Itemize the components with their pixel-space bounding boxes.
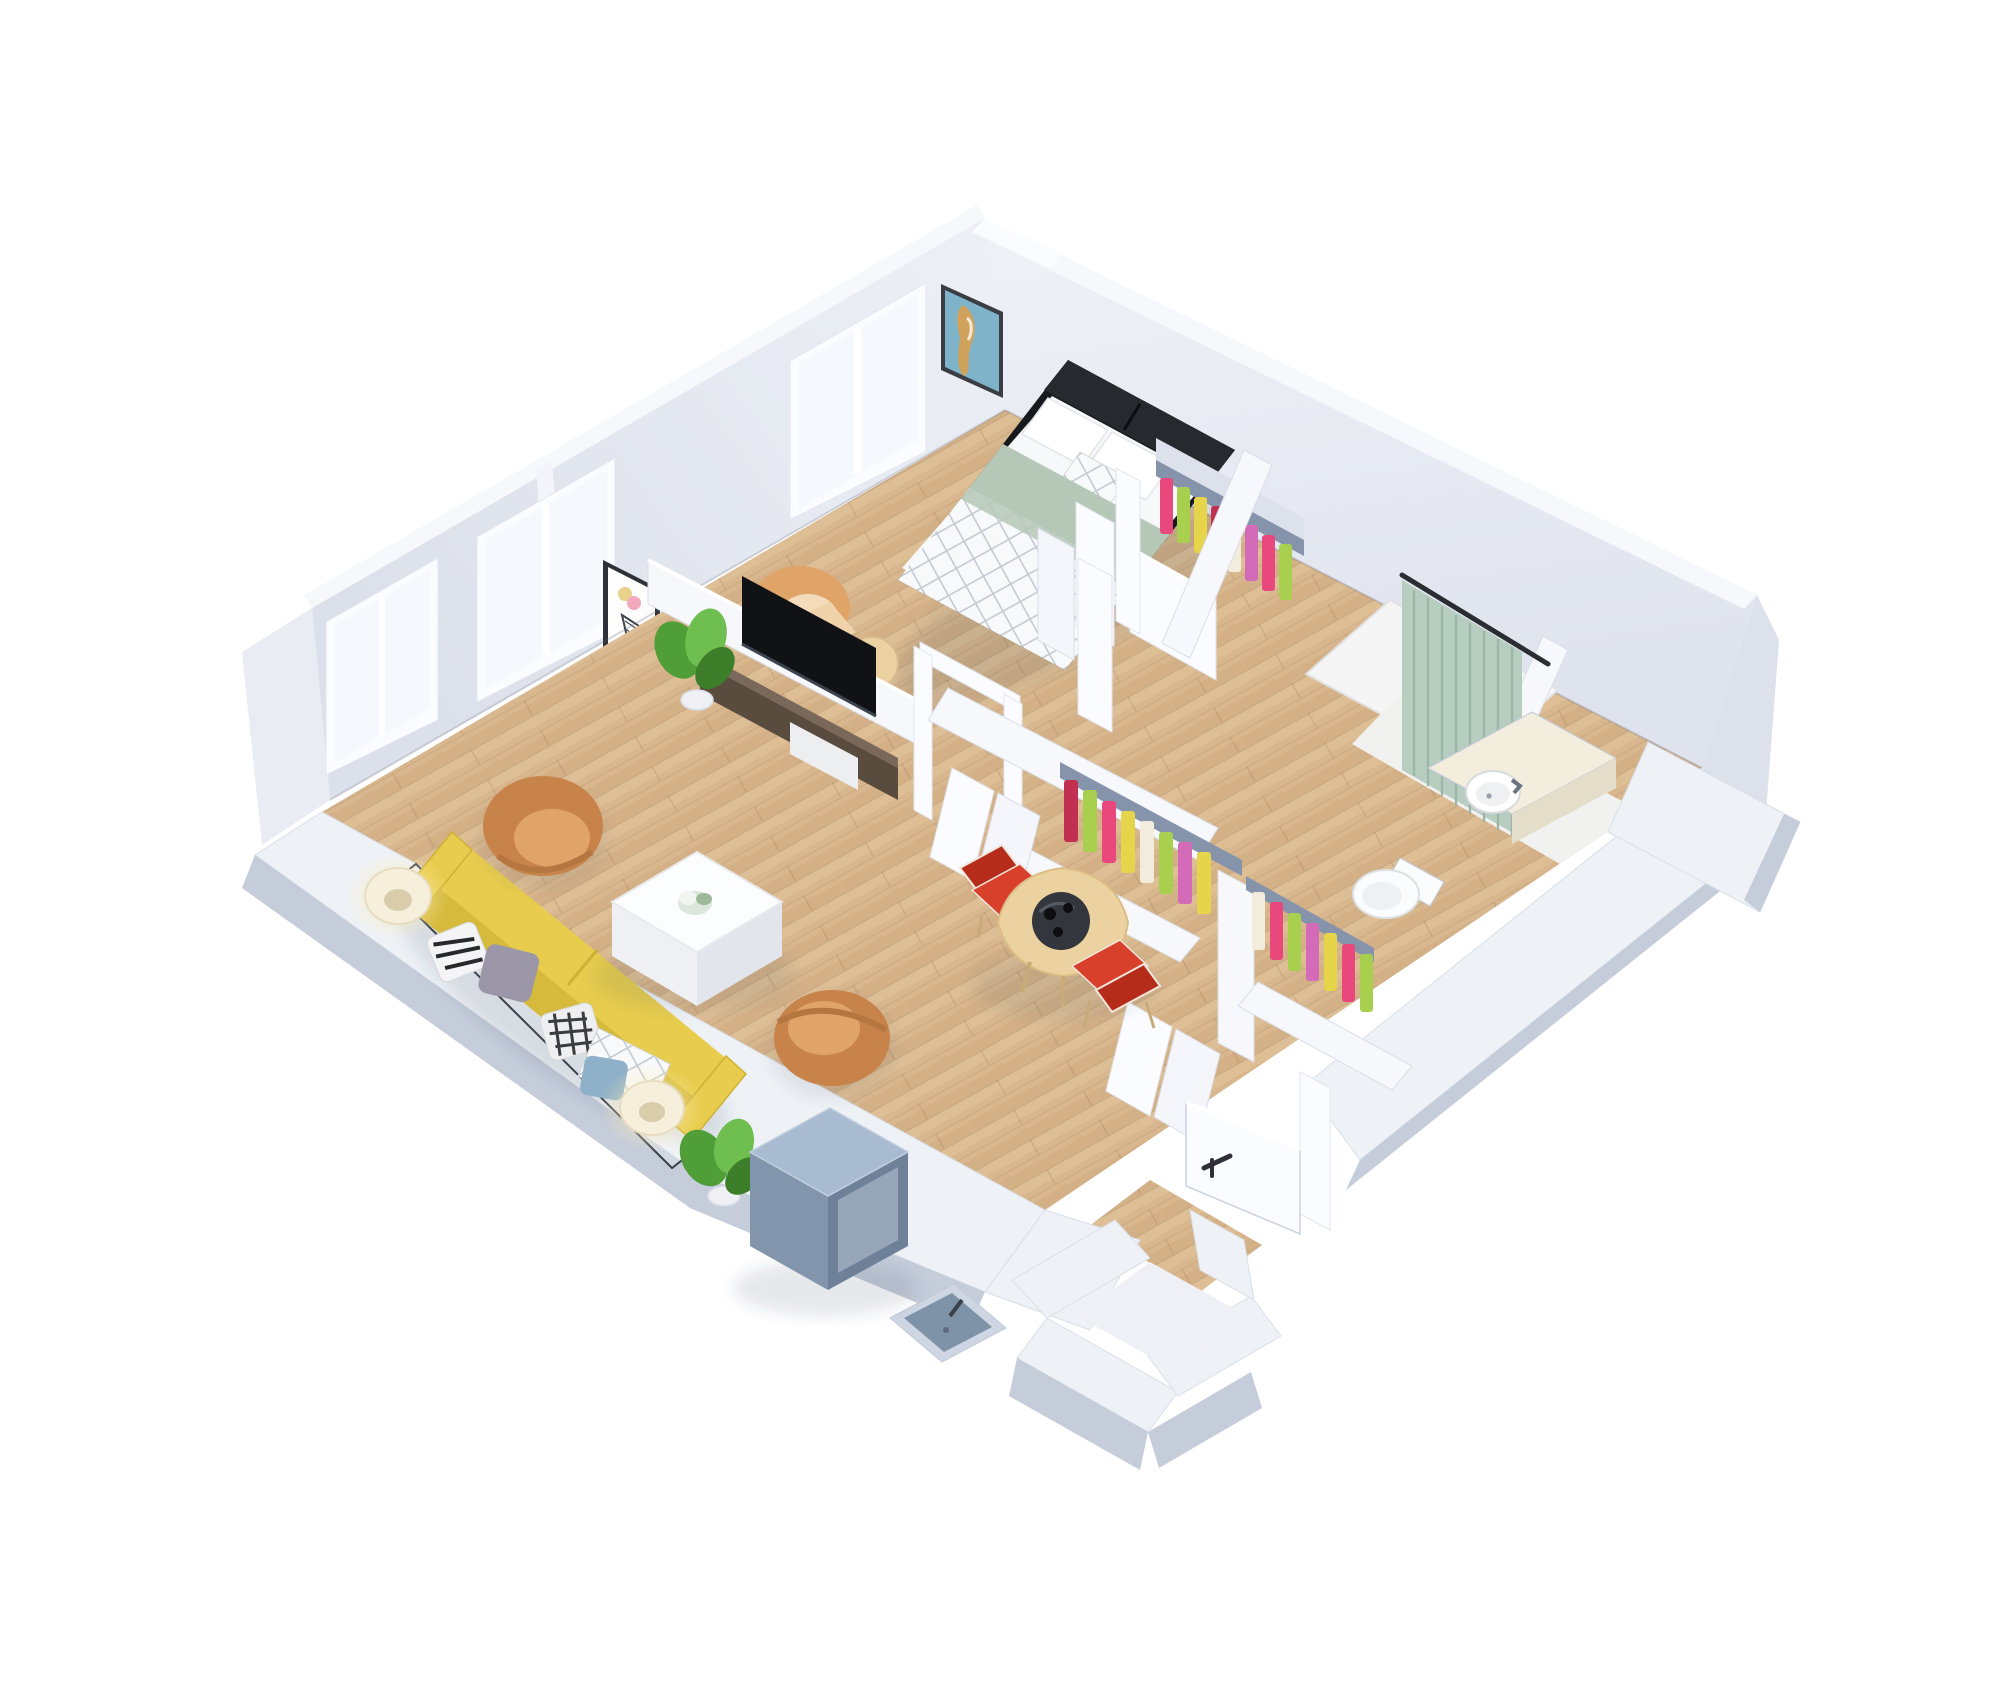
clothing-item <box>1177 487 1190 543</box>
clothing-item <box>1102 801 1116 863</box>
lazy-susan-tray <box>1032 892 1090 950</box>
clothing-item <box>1159 832 1173 894</box>
closet-side-wall <box>1116 468 1140 634</box>
flowers <box>679 891 697 905</box>
tray-cup <box>1044 908 1056 920</box>
clothing-item <box>1279 544 1292 600</box>
sink-drain <box>1486 793 1491 798</box>
clothing-item <box>1178 842 1192 904</box>
sink-bowl <box>1476 782 1510 806</box>
floorplan-stage <box>0 0 2000 1700</box>
clothing-item <box>1140 821 1154 883</box>
flowers <box>696 893 712 905</box>
clothing-item <box>1324 933 1337 991</box>
closet-door-open <box>1038 528 1074 660</box>
armchair-lower <box>770 990 894 1098</box>
tray-cup <box>1053 927 1063 937</box>
hall-wall-panel <box>1078 558 1112 732</box>
plant-pot <box>681 690 713 710</box>
clothing-item <box>1083 790 1097 852</box>
toilet-seat <box>1362 882 1402 910</box>
lamp-top <box>639 1102 665 1122</box>
clothing-item <box>1270 902 1283 960</box>
clothing-item <box>1360 954 1373 1012</box>
clothing-item <box>1121 811 1135 873</box>
entry-door-jamb <box>1300 1072 1330 1230</box>
lamp-top <box>384 889 412 911</box>
clothing-item <box>1252 892 1265 950</box>
clothing-item <box>1288 913 1301 971</box>
clothing-item <box>1064 780 1078 842</box>
tray-cup <box>1063 903 1073 913</box>
table-lamp-left <box>346 852 450 940</box>
clothing-item <box>1160 478 1173 534</box>
apartment-3d-floorplan <box>0 0 2000 1700</box>
utility-drain <box>943 1327 949 1333</box>
closet-wall <box>1218 870 1254 1062</box>
armchair-upper <box>481 776 605 888</box>
art-circle-pink <box>627 596 641 610</box>
clothing-item <box>1306 923 1319 981</box>
clothing-item <box>1197 852 1211 914</box>
clothing-item <box>1262 535 1275 591</box>
clothing-item <box>1245 525 1258 581</box>
flower-vase <box>678 891 712 915</box>
clothing-item <box>1342 944 1355 1002</box>
door-jamb <box>914 646 932 820</box>
